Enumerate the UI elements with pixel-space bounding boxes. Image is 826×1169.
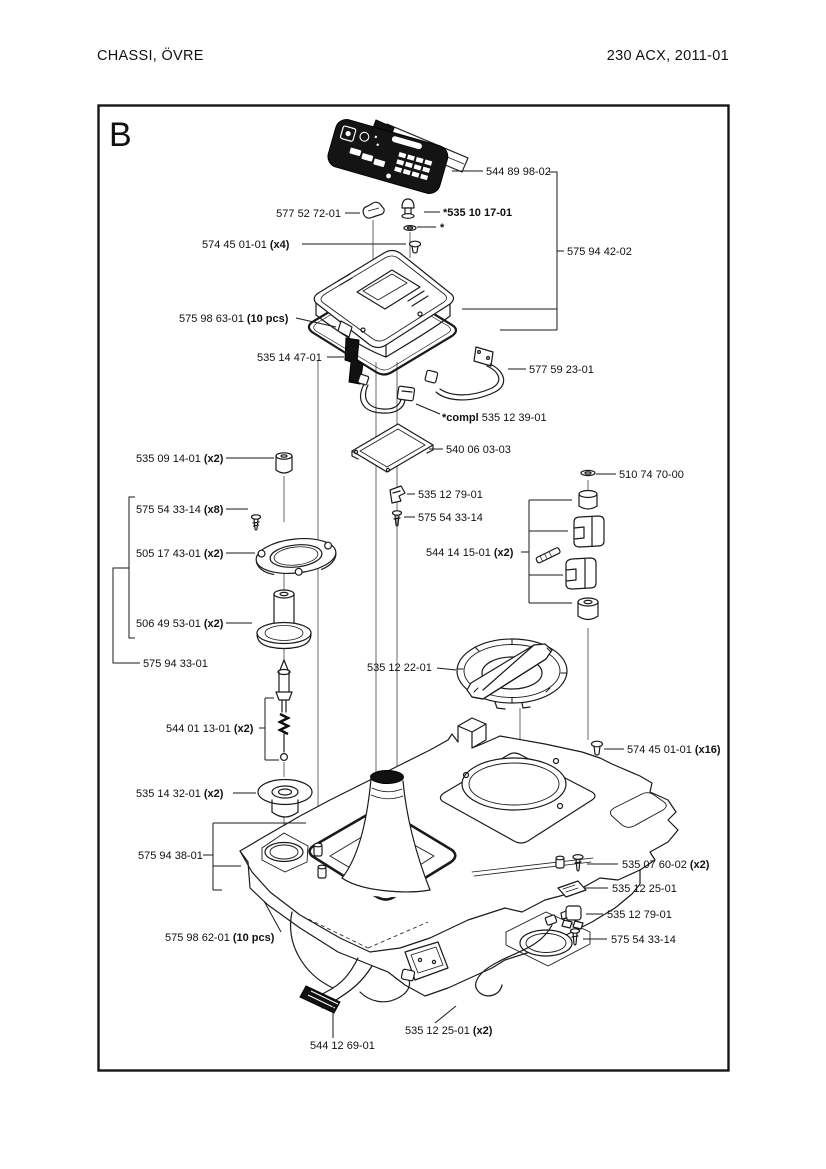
label-screw-x4: 574 45 01-01(x4) — [202, 239, 290, 251]
manual-page: CHASSI, ÖVRE 230 ACX, 2011-01 B — [0, 0, 826, 1169]
label-contact-block-set: 544 14 15-01(x2) — [426, 547, 514, 559]
label-screw-lower: 575 54 33-14 — [611, 934, 676, 946]
exploded-diagram: B — [0, 0, 826, 1169]
label-adjuster-cap: 535 12 22-01 — [367, 662, 432, 674]
label-ribbon-cable: 544 12 69-01 — [310, 1040, 375, 1052]
label-screw-plate: 535 07 60-02(x2) — [622, 859, 710, 871]
cable-clip-art — [363, 202, 384, 218]
screw-chassis-art — [592, 741, 603, 755]
label-contact-plate-bottom: 535 12 25-01(x2) — [405, 1025, 493, 1037]
frame-plate-art — [352, 424, 433, 472]
cover-art — [314, 251, 453, 358]
height-spool-art — [257, 590, 311, 649]
label-rubber-strip: 535 14 47-01 — [257, 352, 322, 364]
pin-washer-art — [404, 226, 416, 231]
label-pin: *535 10 17-01 — [443, 207, 512, 219]
clip-right-art — [390, 486, 405, 503]
label-gasket-top: 575 98 63-01(10 pcs) — [179, 313, 289, 325]
label-washer-top: 510 74 70-00 — [619, 469, 684, 481]
washer-top-art — [581, 470, 595, 475]
label-bearing-ring: 505 17 43-01(x2) — [136, 548, 224, 560]
label-cover-assembly: 575 94 42-02 — [567, 246, 632, 258]
label-gasket-bottom: 575 98 62-01(10 pcs) — [165, 932, 275, 944]
contact-block-set-art — [536, 491, 604, 620]
adjuster-cap-art — [457, 639, 567, 709]
section-letter: B — [109, 116, 132, 154]
label-chassis-assembly: 575 94 38-01 — [138, 850, 203, 862]
label-spring-pin: 544 01 13-01(x2) — [166, 723, 254, 735]
label-cable-clip: 577 52 72-01 — [276, 208, 341, 220]
cable-complete-art — [358, 374, 415, 413]
label-cable-complete: *compl 535 12 39-01 — [442, 412, 547, 424]
wire-handle-art — [425, 347, 504, 400]
label-screw-chassis: 574 45 01-01(x16) — [627, 744, 721, 756]
label-contact-plate-right: 535 12 25-01 — [612, 883, 677, 895]
label-column-assembly: 575 94 33-01 — [143, 658, 208, 670]
label-washer-note: * — [440, 222, 445, 234]
label-grommet: 535 14 32-01(x2) — [136, 788, 224, 800]
bearing-ring-art — [254, 535, 337, 580]
label-clip-lower: 535 12 79-01 — [607, 909, 672, 921]
spring-pin-art — [276, 660, 292, 760]
label-wire-handle: 577 59 23-01 — [529, 364, 594, 376]
screw-x4-art — [410, 241, 421, 253]
label-frame-plate: 540 06 03-03 — [446, 444, 511, 456]
keypad-overlay-art — [325, 117, 468, 196]
pin-art — [402, 199, 414, 218]
chassis-art — [240, 718, 678, 1002]
label-keypad-overlay: 544 89 98-02 — [486, 166, 551, 178]
screw-x8-art — [252, 515, 261, 530]
label-clip-right: 535 12 79-01 — [418, 489, 483, 501]
label-screw-x8: 575 54 33-14(x8) — [136, 504, 224, 516]
label-height-spool: 506 49 53-01(x2) — [136, 618, 224, 630]
grommet-art — [258, 780, 312, 818]
spacer-cylinder-art — [276, 453, 292, 473]
label-spacer-cylinder: 535 09 14-01(x2) — [136, 453, 224, 465]
clip-lower-art — [561, 906, 583, 929]
ribbon-cable-art — [300, 958, 372, 1013]
label-screw-right: 575 54 33-14 — [418, 512, 483, 524]
